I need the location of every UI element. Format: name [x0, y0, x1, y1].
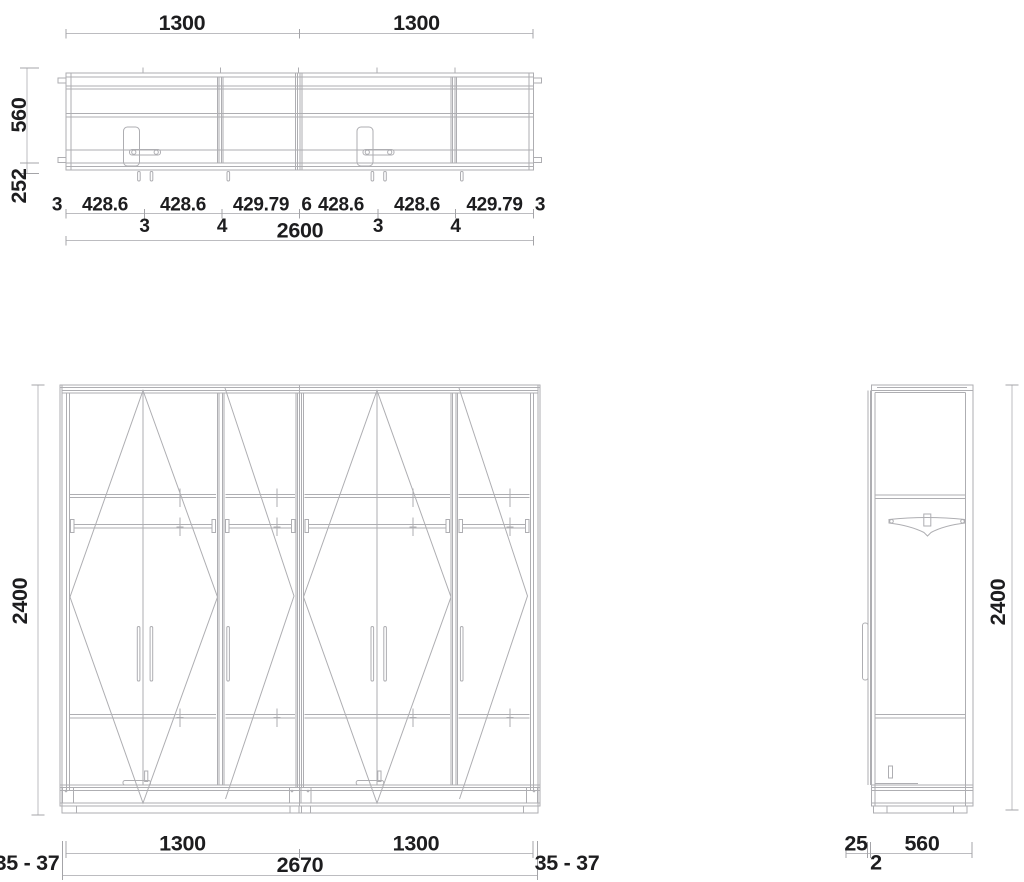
door-handle [227, 627, 230, 682]
dim-chain-10: 4 [450, 216, 461, 237]
foot [954, 806, 968, 813]
rail-cap [226, 520, 230, 533]
plan-module-joint [296, 73, 303, 170]
connector-block [527, 788, 538, 804]
dim-plan-overall: 2600 [277, 219, 324, 243]
dim-chain-6: 6 [301, 195, 311, 216]
dim-front-module-left: 1300 [159, 832, 206, 856]
foot [302, 806, 311, 813]
foot [290, 806, 299, 813]
lock-body [357, 127, 373, 166]
plan-view: 1300 1300 560 252 3 428.6 3 428.6 4 429.… [7, 11, 545, 246]
side-feet [874, 806, 968, 813]
dim-plan-front-zone: 252 [7, 168, 31, 203]
front-feet-and-connectors [62, 788, 538, 814]
rail-cap [71, 520, 75, 533]
bracket-profile [889, 518, 965, 537]
handle-mark [150, 172, 153, 182]
lock-body [124, 127, 140, 166]
side-hanger-bracket [889, 514, 965, 536]
dim-chain-4: 4 [217, 216, 228, 237]
rail-cap [526, 520, 530, 533]
connector-block [63, 788, 74, 804]
lock-pin [378, 771, 381, 782]
front-door-swing-lines [70, 388, 528, 803]
dim-chain-0: 3 [52, 195, 62, 216]
foot [524, 806, 539, 813]
dim-chain-2: 3 [139, 216, 149, 237]
side-shelves [875, 495, 966, 718]
plan-door-handle-marks [138, 172, 464, 182]
front-bottom-locks [123, 771, 384, 785]
connector-block [290, 788, 300, 804]
connector-block [301, 788, 311, 804]
rail-cap [212, 520, 216, 533]
door-handle [460, 627, 463, 682]
dim-plan-width-left: 1300 [159, 11, 206, 35]
foot [62, 806, 77, 813]
drawing-sheet: 1300 1300 560 252 3 428.6 3 428.6 4 429.… [0, 0, 1024, 882]
dim-plan-depth: 560 [7, 97, 31, 132]
dim-side-height: 2400 [986, 578, 1010, 625]
door-handle [150, 627, 153, 682]
front-module-joint [296, 385, 304, 806]
side-carcass-outline [872, 385, 974, 806]
front-door-meeting-lines [143, 393, 377, 785]
dim-side-depth: 560 [905, 832, 940, 856]
bracket-screw [890, 520, 894, 524]
dim-chain-12: 3 [535, 195, 545, 216]
dim-chain-11: 429.79 [466, 195, 522, 216]
handle-mark [461, 172, 464, 182]
lock-pin [889, 766, 893, 778]
side-bottom-lock [875, 766, 918, 784]
side-view: 2400 25 2 560 [844, 385, 1018, 875]
dim-front-height: 2400 [8, 577, 32, 624]
door-handle [384, 627, 387, 682]
rail-cap [446, 520, 450, 533]
handle-mark [384, 172, 387, 182]
dim-front-gap-left: 35 - 37 [0, 851, 60, 875]
dim-front-overall: 2670 [277, 853, 324, 877]
side-door-handle [863, 623, 869, 680]
dim-chain-9: 428.6 [394, 195, 440, 216]
door-handle [371, 627, 374, 682]
rail-cap [459, 520, 463, 533]
dim-front-module-right: 1300 [393, 832, 440, 856]
bracket-hook [924, 514, 931, 526]
lock-pin [145, 771, 148, 782]
front-divider-left [218, 393, 225, 785]
handle-mark [371, 172, 374, 182]
side-top-panel [872, 388, 974, 393]
plan-lock-mechanism-right [357, 127, 394, 166]
side-door-edge [868, 391, 871, 786]
rail-cap [305, 520, 309, 533]
dim-side-handle-offset: 25 [844, 832, 868, 856]
front-view: 2400 1300 1300 2670 35 - 37 35 - 37 [0, 385, 600, 880]
rail-cap [292, 520, 296, 533]
lock-pin [154, 150, 158, 154]
dim-chain-3: 428.6 [160, 195, 206, 216]
front-divider-right [451, 393, 458, 785]
lock-pivot [365, 150, 369, 154]
dim-side-gap: 2 [870, 851, 882, 875]
door-handle [137, 627, 140, 682]
dim-chain-5: 429.79 [233, 195, 289, 216]
dim-chain-8: 3 [373, 216, 383, 237]
dim-plan-width-right: 1300 [393, 11, 440, 35]
bracket-screw [961, 520, 965, 524]
front-door-handles [137, 627, 463, 682]
handle-mark [227, 172, 230, 182]
lock-pin [388, 150, 392, 154]
dim-front-gap-right: 35 - 37 [535, 851, 600, 875]
plan-top-edge-joint-ticks [143, 68, 455, 74]
plan-lock-mechanism-left [124, 127, 161, 166]
dim-chain-7: 428.6 [318, 195, 364, 216]
lock-pivot [132, 150, 136, 154]
dim-chain-1: 428.6 [82, 195, 128, 216]
foot [874, 806, 888, 813]
handle-mark [138, 172, 141, 182]
